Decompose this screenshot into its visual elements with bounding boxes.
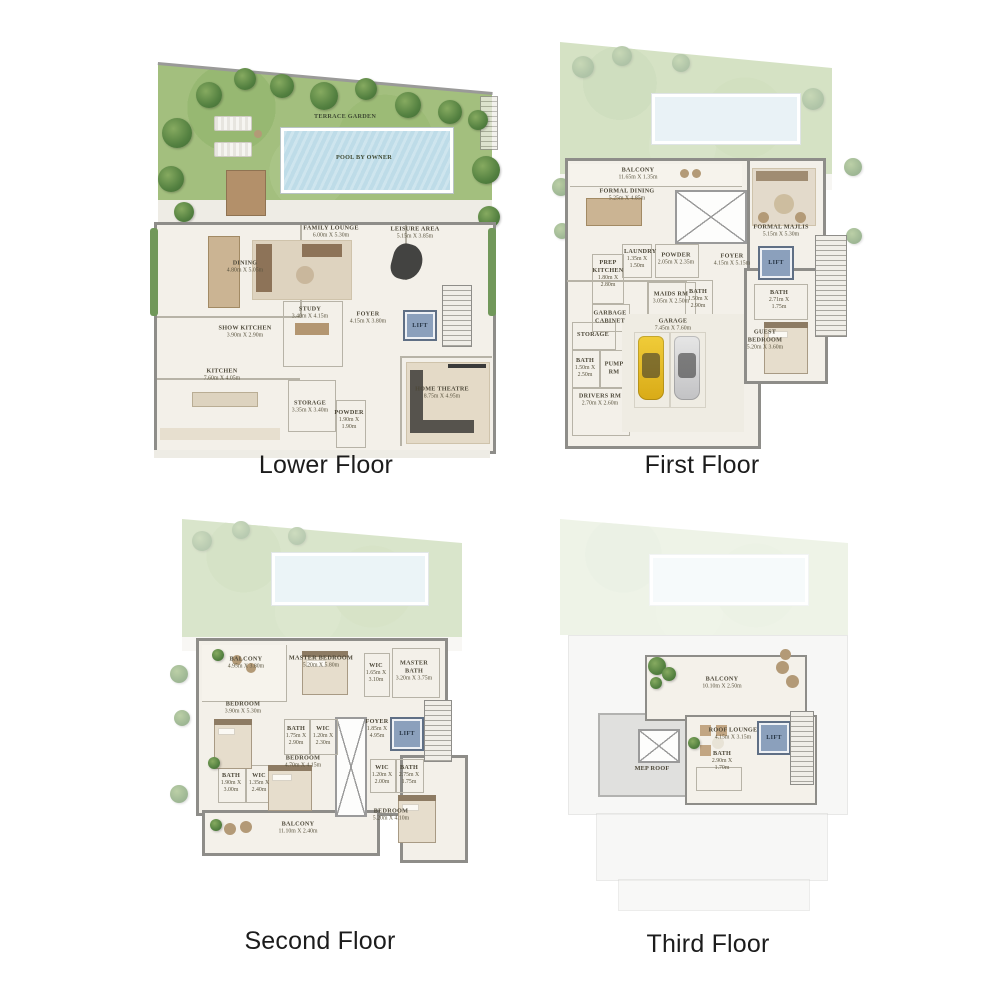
ghost-footprint <box>618 879 810 911</box>
void-opening <box>335 717 367 817</box>
room-dims-text: 2.75m X 1.75m <box>395 772 423 786</box>
round-table-icon <box>774 194 794 214</box>
room-label-balcony-lower: BALCONY11.10m X 2.40m <box>278 821 317 836</box>
room-dims-text: 4.80m X 5.05m <box>227 267 263 274</box>
floor-plan-third: LIFT BALCONY10.10m X 2.50m ROOF LOUNGE4.… <box>548 505 868 925</box>
room-dims-text: 1.90m X 3.00m <box>219 780 243 794</box>
room-label-wic-left: WIC1.35m X 2.40m <box>247 772 271 794</box>
wall <box>157 316 300 318</box>
ghost-footprint <box>596 813 828 881</box>
staircase <box>790 711 814 785</box>
balcony-chair-icon <box>224 823 236 835</box>
lift: LIFT <box>390 717 424 751</box>
balcony-chair-icon <box>240 821 252 833</box>
tree-icon <box>192 531 212 551</box>
room-name-text: POOL BY OWNER <box>336 154 392 162</box>
armchair-icon <box>795 212 806 223</box>
room-dims-text: 5.15m X 3.85m <box>391 233 440 240</box>
palm-tree-icon <box>174 710 190 726</box>
room-dims-text: 5.20m X 5.80m <box>289 662 353 669</box>
room-name-text: GARAGE <box>655 318 691 326</box>
room-name-text: GARBAGE CABINET <box>591 309 629 325</box>
room-dims-text: 4.15m X 5.15m <box>714 260 750 267</box>
room-label-bath: BATH2.90m X 1.70m <box>707 750 737 772</box>
palm-tree-icon <box>170 785 188 803</box>
room-label-bath-guest: BATH2.71m X 1.75m <box>764 289 794 311</box>
room-name-text: FOYER <box>350 311 386 319</box>
room-label-foyer: FOYER1.85m X 4.95m <box>364 718 390 740</box>
room-dims-text: 1.35m X 1.50m <box>624 256 650 270</box>
room-name-text: MASTER BATH <box>393 660 435 676</box>
room-dims-text: 4.95m X 3.80m <box>228 663 264 670</box>
car-cabin <box>678 353 696 378</box>
room-name-text: ROOF LOUNGE <box>709 727 758 735</box>
caption-first-floor: First Floor <box>552 450 852 480</box>
room-name-text: BATH <box>764 289 794 297</box>
room-label-balcony: BALCONY11.65m X 1.35m <box>618 167 657 182</box>
tree-icon <box>196 82 222 108</box>
caption-second-floor: Second Floor <box>168 926 472 956</box>
room-label-balcony: BALCONY10.10m X 2.50m <box>702 676 741 691</box>
room-name-text: PREP KITCHEN <box>591 259 625 275</box>
room-name-text: WIC <box>370 764 394 772</box>
terrace-garden-label: TERRACE GARDEN <box>314 113 376 121</box>
staircase <box>442 285 472 347</box>
coffee-table-icon <box>296 266 314 284</box>
tree-icon <box>234 68 256 90</box>
tree-icon <box>572 56 594 78</box>
lift-label: LIFT <box>399 731 415 737</box>
room-name-text: BALCONY <box>278 821 317 829</box>
room-label-leisure-area: LEISURE AREA5.15m X 3.85m <box>391 226 440 241</box>
lift: LIFT <box>403 310 437 341</box>
room-name-text: BATH <box>219 772 243 780</box>
room-dims-text: 7.45m X 7.60m <box>655 325 691 332</box>
room-name-text: BATH <box>573 357 597 365</box>
room-label-powder: POWDER1.90m X 1.90m <box>334 409 364 431</box>
room-label-foyer: FOYER4.15m X 5.15m <box>714 253 750 268</box>
room-label-storage: STORAGE <box>577 331 609 339</box>
kitchen-counter-icon <box>160 428 280 440</box>
room-dims-text: 1.90m X 1.90m <box>334 417 364 431</box>
room-label-formal-majlis: FORMAL MAJLIS5.15m X 5.30m <box>753 224 808 239</box>
room-name-text: FOYER <box>364 718 390 726</box>
room-dims-text: 6.00m X 5.30m <box>303 232 358 239</box>
room-label-show-kitchen: SHOW KITCHEN3.90m X 2.90m <box>219 325 272 340</box>
room-label-wic-mid: WIC1.20m X 2.30m <box>311 725 335 747</box>
sofa-icon <box>756 171 808 181</box>
ghost-pool <box>272 553 428 605</box>
car-cabin <box>642 353 660 378</box>
room-name-text: TERRACE GARDEN <box>314 113 376 121</box>
room-dims-text: 4.70m X 4.15m <box>285 762 321 769</box>
room-label-dining: DINING4.80m X 5.05m <box>227 260 263 275</box>
room-name-text: FORMAL DINING <box>600 188 655 196</box>
room-dims-text: 2.05m X 2.35m <box>658 259 694 266</box>
balcony-chair-icon <box>692 169 701 178</box>
tree-icon <box>158 166 184 192</box>
room-label-laundry: LAUNDRY1.35m X 1.50m <box>624 248 650 270</box>
room-name-text: SHOW KITCHEN <box>219 325 272 333</box>
floor-plans-sheet: TERRACE GARDEN POOL BY OWNER LIFT FAMILY… <box>0 0 1000 1000</box>
room-dims-text: 3.20m X 3.75m <box>393 675 435 682</box>
room-dims-text: 1.80m X 2.80m <box>591 275 625 289</box>
room-name-text: WIC <box>311 725 335 733</box>
sun-lounger-icon <box>214 116 252 131</box>
room-dims-text: 1.35m X 2.40m <box>247 780 271 794</box>
staircase <box>424 700 452 762</box>
room-label-bath-mid: BATH1.75m X 2.90m <box>284 725 308 747</box>
tree-icon <box>672 54 690 72</box>
room-name-text: GUEST BEDROOM <box>743 329 787 345</box>
hedge <box>488 228 496 316</box>
room-label-bath-right: BATH2.75m X 1.75m <box>395 764 423 786</box>
study-desk-icon <box>295 323 329 335</box>
room-label-roof-lounge: ROOF LOUNGE4.15m X 3.15m <box>709 727 758 742</box>
room-dims-text: 5.20m X 4.10m <box>373 815 409 822</box>
palm-tree-icon <box>174 202 194 222</box>
balcony-chair-icon <box>680 169 689 178</box>
room-name-text: PUMP RM <box>602 360 626 376</box>
room-label-powder: POWDER2.05m X 2.35m <box>658 252 694 267</box>
sofa-icon <box>302 244 342 257</box>
room-dims-text: 5.20m X 3.60m <box>743 344 787 351</box>
floor-plan-second: LIFT BALCONY4.95m X 3.80m MASTER BEDROOM… <box>168 505 472 925</box>
caption-third-floor: Third Floor <box>548 929 868 959</box>
sun-lounger-icon <box>214 142 252 157</box>
room-dims-text: 5.15m X 5.30m <box>753 231 808 238</box>
room-label-mep-roof: MEP ROOF <box>635 765 670 773</box>
room-name-text: FORMAL MAJLIS <box>753 224 808 232</box>
room-label-wic-right: WIC1.20m X 2.00m <box>370 764 394 786</box>
bed-icon <box>268 765 312 811</box>
tree-icon <box>162 118 192 148</box>
room-name-text: BALCONY <box>228 656 264 664</box>
room-name-text: BATH <box>707 750 737 758</box>
room-name-text: KITCHEN <box>204 368 240 376</box>
room-label-master-bedroom: MASTER BEDROOM5.20m X 5.80m <box>289 655 353 670</box>
room-dims-text: 1.85m X 4.95m <box>364 726 390 740</box>
room-label-master-bath: MASTER BATH3.20m X 3.75m <box>393 660 435 683</box>
room-name-text: STORAGE <box>577 331 609 339</box>
room-dims-text: 4.15m X 3.15m <box>709 734 758 741</box>
room-dims-text: 7.60m X 4.05m <box>204 375 240 382</box>
outdoor-dining-table-icon <box>226 170 266 216</box>
room-name-text: BALCONY <box>702 676 741 684</box>
room-dims-text: 1.20m X 2.00m <box>370 772 394 786</box>
lift-label: LIFT <box>768 260 784 266</box>
room-name-text: DINING <box>227 260 263 268</box>
room-dims-text: 11.65m X 1.35m <box>618 174 657 181</box>
hedge <box>150 228 158 316</box>
lift-label: LIFT <box>412 323 428 329</box>
room-dims-text: 3.90m X 5.30m <box>225 708 261 715</box>
room-label-garbage-cabinet: GARBAGE CABINET <box>591 309 629 325</box>
room-name-text: FOYER <box>714 253 750 261</box>
tree-icon <box>802 88 824 110</box>
room-dims-text: 1.75m X 2.90m <box>284 733 308 747</box>
lift: LIFT <box>758 246 794 280</box>
balcony-chair-icon <box>786 675 799 688</box>
caption-lower-floor: Lower Floor <box>150 450 502 480</box>
armchair-icon <box>758 212 769 223</box>
room-dims-text: 3.40m X 4.15m <box>292 313 328 320</box>
room-name-text: STUDY <box>292 306 328 314</box>
room-name-text: BATH <box>395 764 423 772</box>
lift-label: LIFT <box>766 735 782 741</box>
tree-icon <box>472 156 500 184</box>
room-label-bath-maids: BATH1.50m X 2.90m <box>686 288 710 310</box>
tree-icon <box>355 78 377 100</box>
silver-car-icon <box>674 336 700 400</box>
room-dims-text: 8.75m X 4.95m <box>415 393 469 400</box>
room-name-text: STORAGE <box>292 400 328 408</box>
room-label-bedroom-mid: BEDROOM4.70m X 4.15m <box>285 755 321 770</box>
pool-label: POOL BY OWNER <box>336 154 392 162</box>
floor-plan-lower: TERRACE GARDEN POOL BY OWNER LIFT FAMILY… <box>150 48 502 460</box>
room-name-text: WIC <box>247 772 271 780</box>
room-name-text: MEP ROOF <box>635 765 670 773</box>
room-name-text: BEDROOM <box>225 701 261 709</box>
room-label-maids-rm: MAIDS RM3.05m X 2.50m <box>653 291 689 306</box>
plant-icon <box>662 667 676 681</box>
staircase <box>815 235 847 337</box>
room-label-prep-kitchen: PREP KITCHEN1.80m X 2.80m <box>591 259 625 289</box>
room-dims-text: 1.50m X 2.50m <box>573 365 597 379</box>
yellow-car-icon <box>638 336 664 400</box>
tree-icon <box>270 74 294 98</box>
room-name-text: POWDER <box>658 252 694 260</box>
room-label-guest-bedroom: GUEST BEDROOM5.20m X 3.60m <box>743 329 787 352</box>
room-label-bath-small: BATH1.50m X 2.50m <box>573 357 597 379</box>
room-label-bedroom-left: BEDROOM3.90m X 5.30m <box>225 701 261 716</box>
room-name-text: HOME THEATRE <box>415 386 469 394</box>
kitchen-island-icon <box>192 392 258 407</box>
room-dims-text: 2.90m X 1.70m <box>707 758 737 772</box>
room-label-foyer: FOYER4.15m X 3.80m <box>350 311 386 326</box>
room-dims-text: 3.90m X 2.90m <box>219 332 272 339</box>
room-dims-text: 5.25m X 4.85m <box>600 195 655 202</box>
ghost-pool <box>650 555 808 605</box>
room-dims-text: 10.10m X 2.50m <box>702 683 741 690</box>
room-name-text: BALCONY <box>618 167 657 175</box>
room-dims-text: 3.35m X 3.40m <box>292 407 328 414</box>
room-name-text: POWDER <box>334 409 364 417</box>
tree-icon <box>612 46 632 66</box>
tree-icon <box>468 110 488 130</box>
plant-icon <box>210 819 222 831</box>
floor-plan-first: LIFT BALCONY11.65m X 1.35m FORMAL DINING… <box>552 28 864 448</box>
room-dims-text: 1.50m X 2.90m <box>686 296 710 310</box>
room-name-text: WIC <box>363 662 389 670</box>
room-dims-text: 11.10m X 2.40m <box>278 828 317 835</box>
room-name-text: BATH <box>284 725 308 733</box>
room-dims-text: 1.20m X 2.30m <box>311 733 335 747</box>
room-dims-text: 2.71m X 1.75m <box>764 297 794 311</box>
room-label-wic-master: WIC1.65m X 3.10m <box>363 662 389 684</box>
side-table-icon <box>254 130 262 138</box>
plant-icon <box>650 677 662 689</box>
room-label-garage: GARAGE7.45m X 7.60m <box>655 318 691 333</box>
wall <box>400 356 492 358</box>
room-name-text: LEISURE AREA <box>391 226 440 234</box>
walkway <box>158 200 492 222</box>
room-label-kitchen: KITCHEN7.60m X 4.05m <box>204 368 240 383</box>
room-label-bath-left: BATH1.90m X 3.00m <box>219 772 243 794</box>
tree-icon <box>395 92 421 118</box>
room-label-bedroom-right: BEDROOM5.20m X 4.10m <box>373 808 409 823</box>
room-label-pump-rm: PUMP RM <box>602 360 626 376</box>
ghost-pool <box>652 94 800 144</box>
plant-icon <box>688 737 700 749</box>
plant-icon <box>208 757 220 769</box>
room-dims-text: 1.65m X 3.10m <box>363 670 389 684</box>
room-label-storage: STORAGE3.35m X 3.40m <box>292 400 328 415</box>
room-dims-text: 4.15m X 3.80m <box>350 318 386 325</box>
room-label-drivers-rm: DRIVERS RM2.70m X 2.60m <box>579 393 621 408</box>
room-label-balcony-upper: BALCONY4.95m X 3.80m <box>228 656 264 671</box>
tv-screen-icon <box>448 364 486 368</box>
room-name-text: MAIDS RM <box>653 291 689 299</box>
balcony-chair-icon <box>776 661 789 674</box>
palm-tree-icon <box>846 228 862 244</box>
room-label-study: STUDY3.40m X 4.15m <box>292 306 328 321</box>
palm-tree-icon <box>170 665 188 683</box>
lift: LIFT <box>757 721 791 755</box>
theatre-sofa-icon <box>410 420 474 433</box>
tree-icon <box>438 100 462 124</box>
room-dims-text: 3.05m X 2.50m <box>653 298 689 305</box>
palm-tree-icon <box>844 158 862 176</box>
tree-icon <box>310 82 338 110</box>
room-label-home-theatre: HOME THEATRE8.75m X 4.95m <box>415 386 469 401</box>
room-dims-text: 2.70m X 2.60m <box>579 400 621 407</box>
balcony-chair-icon <box>780 649 791 660</box>
wall <box>400 356 402 446</box>
room-name-text: FAMILY LOUNGE <box>303 225 358 233</box>
plant-icon <box>212 649 224 661</box>
room-label-family-lounge: FAMILY LOUNGE6.00m X 5.30m <box>303 225 358 240</box>
room-name-text: BEDROOM <box>285 755 321 763</box>
room-name-text: LAUNDRY <box>624 248 650 256</box>
room-label-formal-dining: FORMAL DINING5.25m X 4.85m <box>600 188 655 203</box>
room-name-text: BEDROOM <box>373 808 409 816</box>
tree-icon <box>288 527 306 545</box>
room-name-text: BATH <box>686 288 710 296</box>
tree-icon <box>232 521 250 539</box>
void-opening <box>675 190 747 244</box>
roof-hatch-opening <box>638 729 680 763</box>
room-name-text: MASTER BEDROOM <box>289 655 353 663</box>
room-name-text: DRIVERS RM <box>579 393 621 401</box>
